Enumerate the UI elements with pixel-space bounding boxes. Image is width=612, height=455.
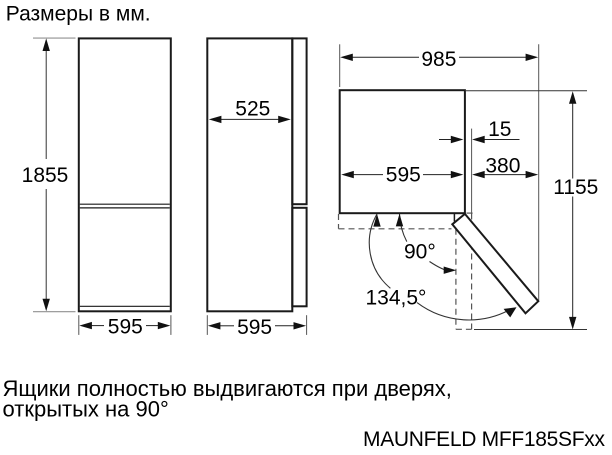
svg-text:открытых на 90°: открытых на 90° [3,397,169,422]
svg-text:595: 595 [386,163,421,186]
svg-text:1155: 1155 [553,176,598,199]
svg-text:985: 985 [421,48,456,71]
svg-text:MAUNFELD MFF185SFxx: MAUNFELD MFF185SFxx [363,428,605,451]
svg-text:90°: 90° [404,241,436,264]
svg-text:134,5°: 134,5° [366,287,427,310]
svg-text:Размеры в мм.: Размеры в мм. [6,2,151,25]
svg-text:1855: 1855 [22,164,69,187]
svg-text:380: 380 [485,154,520,177]
svg-text:525: 525 [235,97,270,120]
svg-text:595: 595 [237,316,272,339]
svg-text:15: 15 [488,118,511,141]
svg-text:595: 595 [108,316,143,339]
